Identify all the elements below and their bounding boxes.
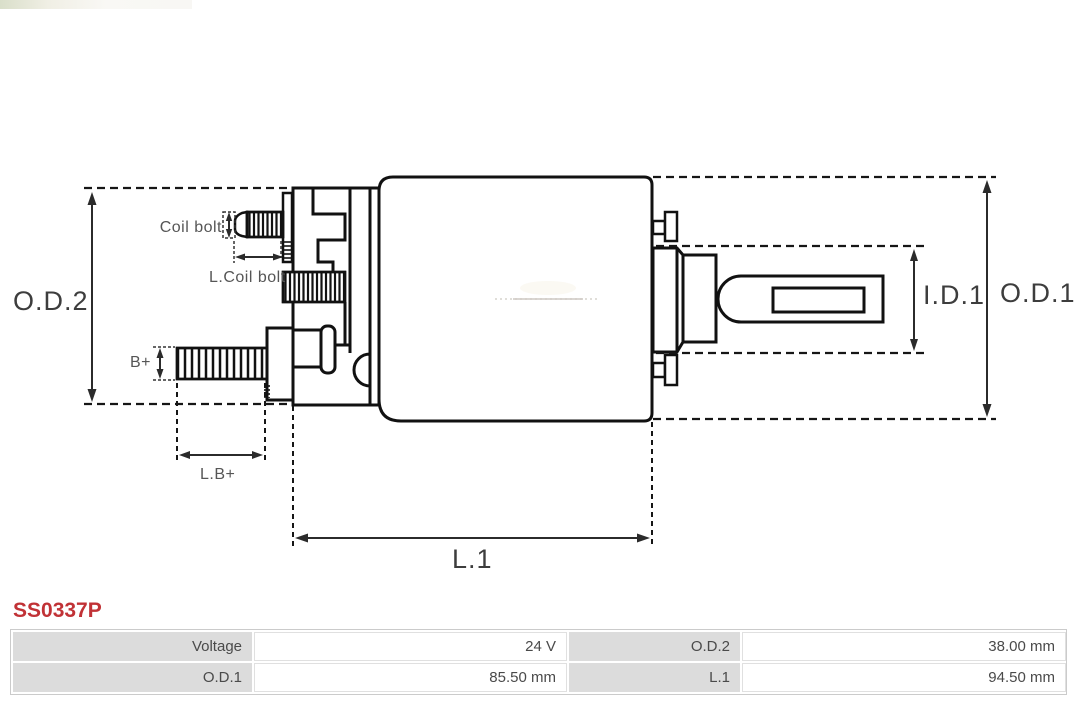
coil-bolt-label: Coil bolt [160, 219, 222, 236]
l-coil-bolt-label: L.Coil bolt [209, 269, 286, 286]
l-coil-bolt-dimension: L.Coil bolt [209, 241, 286, 286]
technical-diagram: O.D.2 Coil bolt L.Coil bolt B+ [0, 0, 1080, 595]
l-b-plus-dimension: L.B+ [177, 383, 265, 483]
b-plus-shank [293, 330, 323, 367]
l1-dimension: L.1 [293, 406, 652, 574]
spec-value-od2: 38.00 mm [742, 632, 1066, 661]
coil-thread-hole [283, 240, 292, 260]
top-left-render-artifact [0, 0, 192, 9]
b-plus-bolt [177, 328, 293, 400]
b-plus-washer [321, 326, 335, 373]
spec-label-od2: O.D.2 [569, 632, 740, 661]
od1-label: O.D.1 [1000, 278, 1076, 308]
spec-value-l1: 94.50 mm [742, 663, 1066, 692]
spec-value-od1: 85.50 mm [254, 663, 567, 692]
od2-label: O.D.2 [13, 286, 89, 316]
spec-value-voltage: 24 V [254, 632, 567, 661]
spec-label-l1: L.1 [569, 663, 740, 692]
coil-bolt [235, 212, 283, 237]
b-plus-label: B+ [130, 354, 151, 371]
spec-label-od1: O.D.1 [13, 663, 252, 692]
specs-table: Voltage 24 V O.D.2 38.00 mm O.D.1 85.50 … [10, 629, 1067, 695]
plunger-slot [773, 288, 864, 312]
part-number: SS0337P [13, 599, 102, 623]
spec-label-voltage: Voltage [13, 632, 252, 661]
front-flange [653, 248, 716, 352]
id1-label: I.D.1 [923, 280, 985, 310]
coil-thread-bushing [283, 272, 345, 302]
plunger [718, 276, 883, 322]
b-plus-nut [267, 328, 293, 400]
l-b-plus-label: L.B+ [200, 466, 235, 483]
terminal-cap [283, 188, 379, 405]
l1-label: L.1 [452, 544, 493, 574]
product-diagram-page: O.D.2 Coil bolt L.Coil bolt B+ [0, 0, 1080, 701]
b-plus-dimension: B+ [130, 347, 175, 380]
solenoid-body [379, 177, 652, 421]
coil-bolt-dimension: Coil bolt [160, 212, 235, 238]
